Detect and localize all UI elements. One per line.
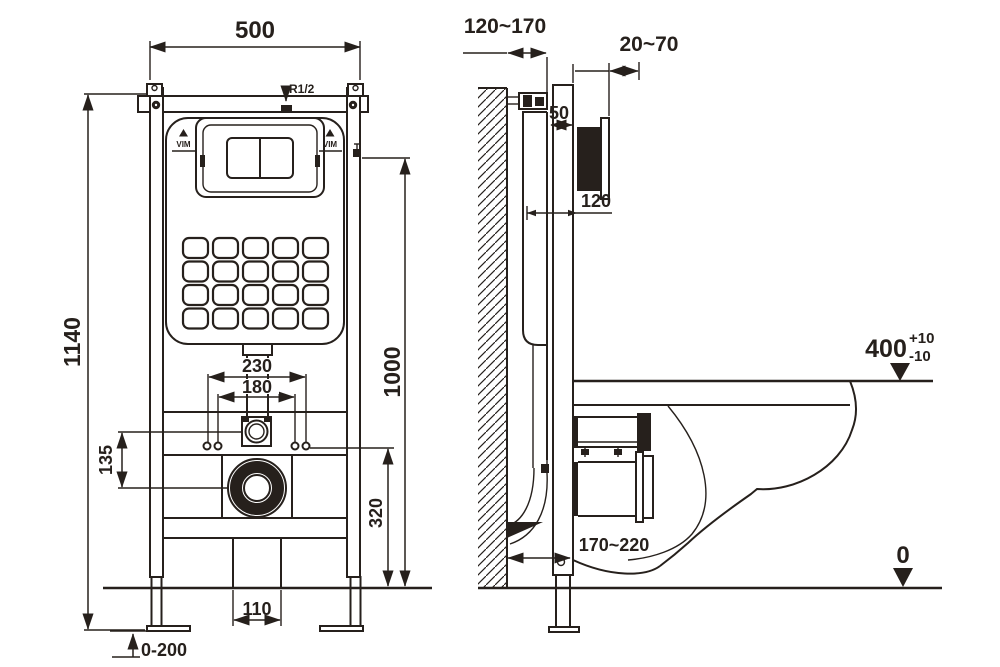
svg-text:120~170: 120~170 — [464, 15, 546, 38]
level-triangle-icon — [890, 363, 910, 381]
svg-text:0: 0 — [896, 542, 909, 569]
flush-bend-and-studs — [573, 413, 651, 457]
dim-duct-width-110: 110 — [233, 590, 281, 626]
drain-elbow — [507, 464, 549, 544]
recess-clip-left — [200, 155, 205, 167]
cistern-tank-side — [523, 112, 547, 470]
water-inlet-fitting — [242, 417, 271, 446]
svg-text:1140: 1140 — [59, 317, 85, 367]
foot-plate-right — [320, 626, 363, 631]
svg-text:170~220: 170~220 — [579, 535, 650, 555]
frame-top-crossbar — [138, 96, 368, 112]
dim-rail-depth-50: 50 — [549, 103, 572, 125]
brand-text: VIM — [176, 140, 191, 149]
drain-outlet — [228, 459, 286, 517]
dim-width-500: 500 — [150, 17, 360, 80]
leg-side — [556, 575, 570, 627]
front-view: VIM VIM — [59, 17, 432, 660]
dim-inlet-to-drain-135: 135 — [96, 432, 242, 488]
seat-height-datum: 400 +10 -10 — [865, 330, 934, 381]
brand-text: VIM — [323, 140, 338, 149]
flush-elbow — [637, 413, 651, 451]
wall-hatching — [478, 88, 507, 588]
svg-text:110: 110 — [242, 599, 271, 619]
water-supply-pipe — [507, 93, 547, 109]
recess-clip-right — [315, 155, 320, 167]
svg-text:0-200: 0-200 — [141, 640, 187, 660]
foot-plate-side — [549, 627, 579, 632]
svg-text:400: 400 — [865, 335, 907, 363]
frame-rail-right — [347, 88, 360, 577]
wall-section — [478, 88, 507, 588]
svg-text:500: 500 — [235, 17, 275, 44]
toilet-frame-installation-drawing: VIM VIM — [0, 0, 1000, 667]
svg-text:120: 120 — [581, 191, 611, 211]
drain-pipe-side — [572, 452, 653, 522]
mounting-stud — [581, 449, 589, 455]
svg-text:180: 180 — [242, 377, 272, 397]
side-view: 400 +10 -10 0 120~170 20~70 50 — [463, 15, 942, 632]
svg-text:230: 230 — [242, 356, 272, 376]
level-triangle-icon — [893, 568, 913, 587]
frame-rail-left — [150, 88, 163, 577]
leg-left — [152, 577, 162, 626]
svg-text:320: 320 — [366, 498, 386, 528]
frame-post-side — [549, 85, 579, 632]
svg-text:-10: -10 — [909, 348, 931, 365]
svg-text:1000: 1000 — [379, 346, 405, 397]
inlet-thread-label: R1/2 — [289, 82, 315, 96]
dim-outlet-offset-170-220: 170~220 — [508, 535, 649, 558]
floor-datum: 0 — [893, 542, 913, 587]
svg-text:20~70: 20~70 — [620, 33, 679, 56]
floor-duct-opening — [233, 538, 281, 588]
mounting-stud — [614, 449, 622, 455]
technical-drawing-page: VIM VIM — [0, 0, 1000, 667]
dim-finish-thickness-20-70: 20~70 — [573, 33, 678, 116]
cistern-tank: VIM VIM — [166, 118, 344, 344]
leg-right — [351, 577, 361, 626]
foot-plate-left — [147, 626, 190, 631]
svg-text:50: 50 — [549, 103, 569, 123]
svg-text:135: 135 — [96, 445, 116, 475]
dim-total-height-1140: 1140 — [59, 94, 148, 630]
dim-foot-adjustment-0-200: 0-200 — [110, 631, 187, 660]
flush-actuator-plate — [577, 118, 609, 199]
svg-text:+10: +10 — [909, 330, 934, 347]
